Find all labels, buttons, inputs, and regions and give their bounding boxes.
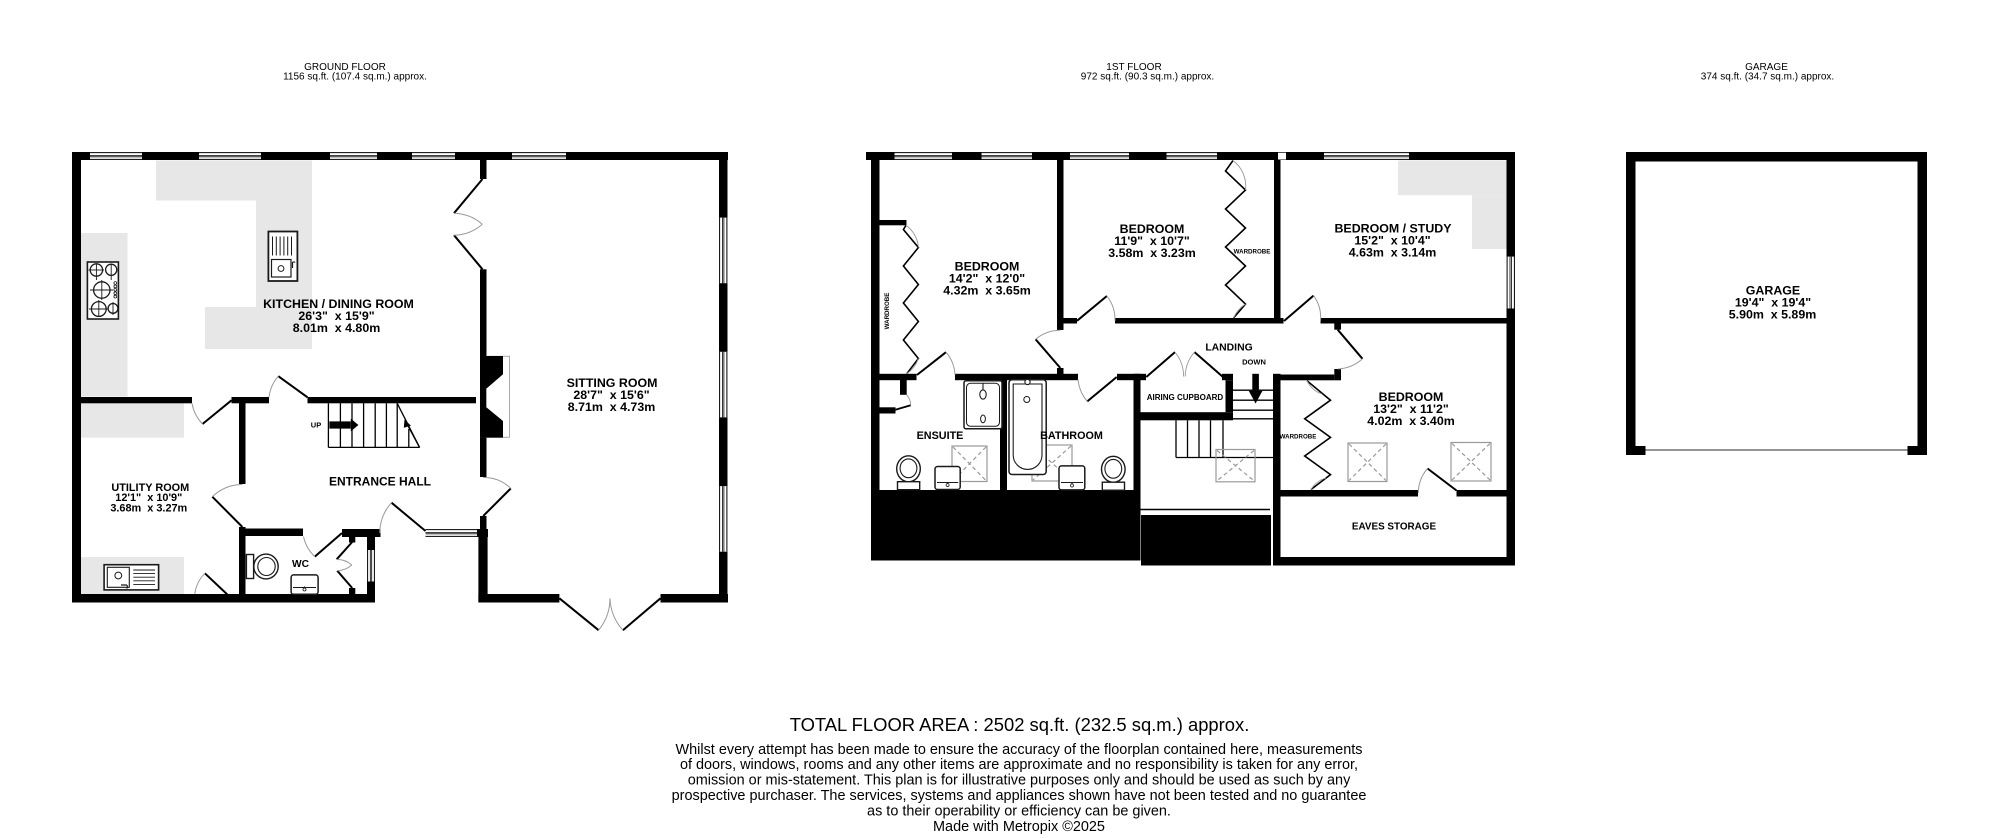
svg-text:LANDING: LANDING [1205, 343, 1252, 354]
svg-text:4.32m x 3.65m: 4.32m x 3.65m [943, 283, 1031, 297]
svg-text:5.90m x 5.89m: 5.90m x 5.89m [1729, 307, 1817, 321]
svg-text:3.58m x 3.23m: 3.58m x 3.23m [1108, 246, 1196, 260]
svg-text:BATHROOM: BATHROOM [1040, 430, 1103, 442]
svg-text:1156 sq.ft. (107.4 sq.m.) appr: 1156 sq.ft. (107.4 sq.m.) approx. [283, 72, 427, 83]
svg-text:8.01m x 4.80m: 8.01m x 4.80m [293, 321, 381, 335]
svg-text:ENSUITE: ENSUITE [917, 430, 964, 442]
svg-text:4.63m x 3.14m: 4.63m x 3.14m [1349, 246, 1437, 260]
svg-text:omission or mis-statement. Thi: omission or mis-statement. This plan is … [688, 773, 1351, 789]
svg-text:WC: WC [292, 559, 310, 570]
svg-text:3.68m x 3.27m: 3.68m x 3.27m [110, 503, 187, 515]
svg-text:Whilst every attempt has been: Whilst every attempt has been made to en… [676, 742, 1363, 758]
svg-text:WARDROBE: WARDROBE [1234, 249, 1271, 256]
svg-text:UP: UP [311, 420, 321, 429]
svg-text:TOTAL FLOOR AREA : 2502 sq.ft.: TOTAL FLOOR AREA : 2502 sq.ft. (232.5 sq… [790, 714, 1250, 735]
svg-text:ENTRANCE HALL: ENTRANCE HALL [329, 474, 431, 488]
svg-text:972 sq.ft. (90.3 sq.m.) approx: 972 sq.ft. (90.3 sq.m.) approx. [1081, 72, 1214, 83]
svg-text:8.71m x 4.73m: 8.71m x 4.73m [568, 400, 656, 414]
svg-text:DOWN: DOWN [1242, 358, 1266, 367]
svg-text:374 sq.ft. (34.7 sq.m.) approx: 374 sq.ft. (34.7 sq.m.) approx. [1701, 72, 1834, 83]
svg-text:WARDROBE: WARDROBE [884, 293, 891, 330]
svg-text:4.02m x 3.40m: 4.02m x 3.40m [1367, 414, 1455, 428]
svg-text:of doors, windows, rooms and a: of doors, windows, rooms and any other i… [680, 757, 1358, 773]
svg-text:Made with Metropix ©2025: Made with Metropix ©2025 [933, 819, 1105, 835]
svg-text:as to their operability or eff: as to their operability or efficiency ca… [867, 803, 1171, 819]
svg-text:EAVES STORAGE: EAVES STORAGE [1352, 521, 1437, 532]
svg-text:prospective purchaser. The ser: prospective purchaser. The services, sys… [672, 788, 1367, 804]
svg-text:AIRING CUPBOARD: AIRING CUPBOARD [1147, 393, 1224, 402]
svg-text:WARDROBE: WARDROBE [1280, 433, 1317, 440]
